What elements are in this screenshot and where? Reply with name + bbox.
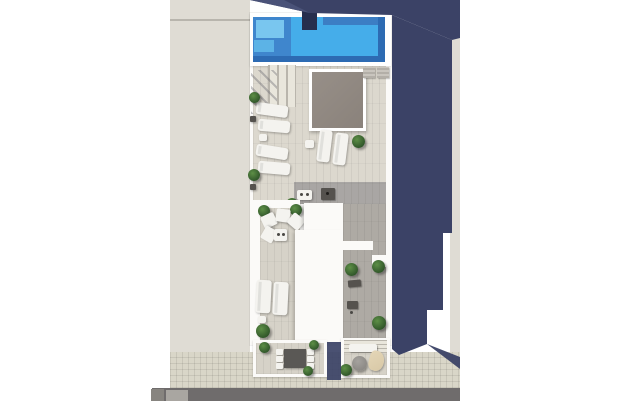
road-mark [166,390,188,401]
architectural-render [0,0,630,401]
side-table [250,184,256,190]
road-object [151,389,164,401]
ac-unit [377,67,389,78]
plant [303,366,313,376]
plant [248,169,260,181]
plant [256,324,270,338]
bench [347,301,358,309]
dining-table [284,349,306,368]
plant [345,263,358,276]
pool-edge-dark-bottom [253,56,385,62]
sun-lounger [272,282,289,316]
dining-chair [276,356,283,362]
plant [352,135,365,148]
pool-shower [302,9,317,30]
plant [372,260,385,273]
plant [259,342,270,353]
bistro-set-white [297,190,312,200]
stairwell-structure [304,203,343,233]
plant [249,92,260,103]
ac-unit [363,67,375,78]
round-chair [352,356,367,371]
sun-lounger [255,280,272,314]
shadow-right-strip [392,15,452,355]
shadow-top-edge-light [250,0,310,13]
plant [340,364,352,376]
plant [309,340,319,350]
side-table [305,140,314,148]
side-table [250,116,256,122]
structure-extension [343,241,373,250]
swimming-pool [253,17,385,62]
stairwell-structure [295,230,343,342]
dining-chair [276,349,283,355]
side-table [258,316,266,323]
neighbor-roof-left [170,0,250,352]
skylight-patio [309,69,366,131]
coffee-table [274,229,287,241]
bench [348,279,362,287]
road [152,388,460,401]
side-table [259,134,267,141]
plant [372,316,386,330]
pool-step [254,40,274,52]
dining-chair [307,356,314,362]
pool-water-shadow [323,17,385,25]
neighbor-edge-right [450,0,460,352]
dining-chair [276,363,283,369]
deck-item [350,311,353,314]
pool-step [256,20,284,38]
parapet-line [170,19,250,21]
bistro-set-dark [321,188,335,200]
